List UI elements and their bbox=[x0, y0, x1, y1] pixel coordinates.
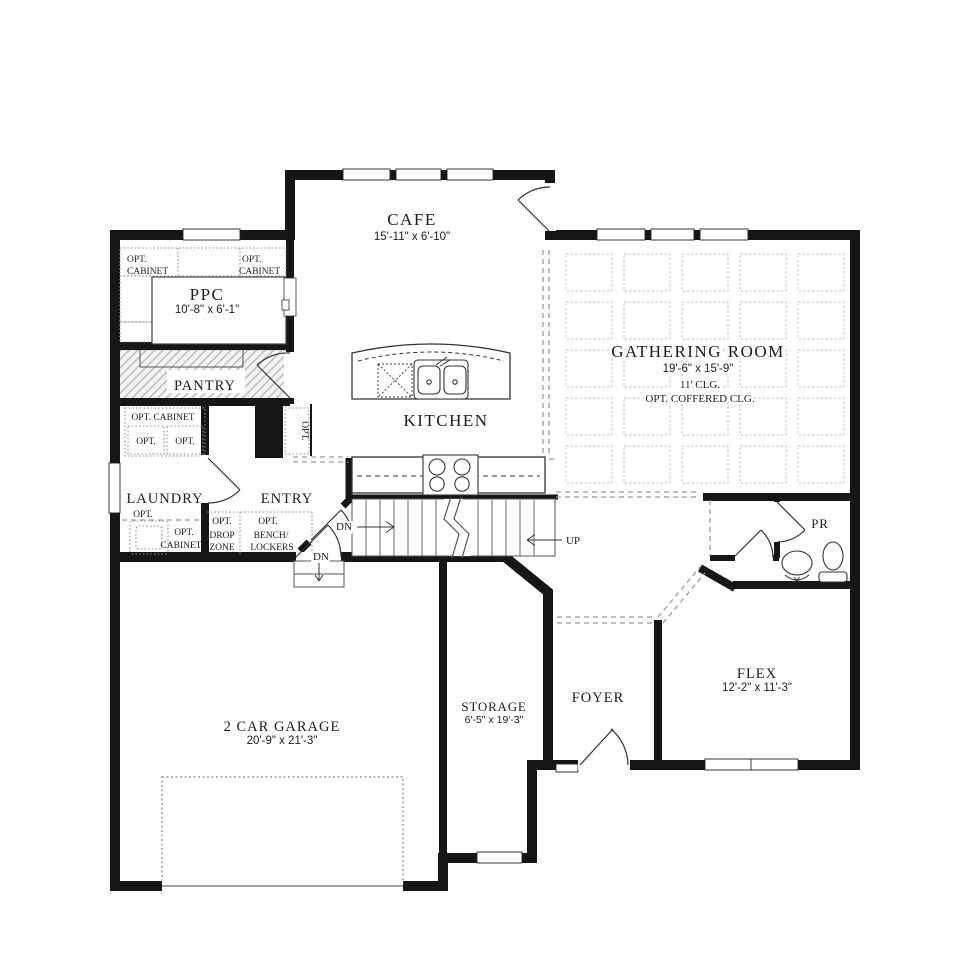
gathering-label: GATHERING ROOM bbox=[611, 342, 785, 361]
opt-cabinet-right-l2: CABINET bbox=[239, 267, 280, 277]
cooktop bbox=[423, 455, 478, 495]
bench-lockers-l3: LOCKERS bbox=[250, 543, 293, 553]
stairs-dn-label: DN bbox=[336, 521, 352, 533]
ppc-opening-handle bbox=[282, 300, 289, 310]
storage-dims: 6'-5" x 19'-3" bbox=[465, 714, 524, 726]
storage-label: STORAGE bbox=[461, 699, 526, 714]
kitchen-label: KITCHEN bbox=[403, 411, 488, 430]
cafe-window bbox=[447, 169, 493, 180]
opt-box-2: OPT. bbox=[175, 437, 195, 447]
cafe-window bbox=[343, 169, 390, 180]
laundry-door bbox=[208, 458, 240, 503]
pr-toilet bbox=[819, 542, 847, 582]
drop-zone-l1: OPT. bbox=[212, 517, 232, 527]
laundry-opt-cab-l1: OPT. bbox=[174, 528, 194, 538]
ppc-dims: 10'-8" x 6'-1" bbox=[175, 304, 239, 316]
opt-cabinet-line: OPT. CABINET bbox=[131, 413, 194, 423]
garage-landing-steps bbox=[294, 561, 344, 587]
powder-room-fixtures bbox=[782, 542, 847, 583]
laundry-opt: OPT. bbox=[133, 510, 153, 520]
garage-step-door bbox=[477, 852, 522, 863]
laundry-opt-cab-l2: CABINET bbox=[160, 541, 201, 551]
floor-plan: CAFE 15'-11" x 6'-10" PPC 10'-8" x 6'-1"… bbox=[0, 0, 960, 960]
porch-step bbox=[556, 764, 578, 772]
drop-zone-l3: ZONE bbox=[209, 543, 235, 553]
flex-dims: 12'-2" x 11'-3" bbox=[722, 682, 792, 694]
kitchen-sink bbox=[414, 357, 468, 399]
closet-opt-vertical: OPT. bbox=[299, 421, 309, 441]
gathering-ceiling: 11' CLG. bbox=[680, 379, 720, 391]
garage-door-outline bbox=[162, 777, 403, 883]
flex-label: FLEX bbox=[737, 666, 777, 682]
laundry-label: LAUNDRY bbox=[126, 491, 203, 507]
gathering-dims: 19'-6" x 15'-9" bbox=[663, 363, 734, 375]
opt-cabinet-left-l2: CABINET bbox=[127, 267, 168, 277]
opt-cabinet-right-l1: OPT. bbox=[242, 255, 262, 265]
front-door bbox=[580, 729, 628, 765]
cafe-dims: 15'-11" x 6'-10" bbox=[374, 231, 450, 243]
gathering-window bbox=[597, 229, 645, 240]
gathering-window bbox=[700, 229, 748, 240]
garage-dims: 20'-9" x 21'-3" bbox=[247, 735, 318, 747]
pantry-label: PANTRY bbox=[174, 378, 236, 394]
entry-label: ENTRY bbox=[261, 491, 314, 507]
bench-lockers-l2: BENCH/ bbox=[254, 531, 289, 541]
pr-sink bbox=[782, 551, 812, 583]
gathering-ceiling-option: OPT. COFFERED CLG. bbox=[645, 393, 754, 405]
pr-label: PR bbox=[811, 516, 829, 531]
foyer-label: FOYER bbox=[572, 690, 625, 706]
landing-dn-label: DN bbox=[313, 551, 329, 563]
stairs bbox=[352, 497, 562, 558]
cafe-label: CAFE bbox=[387, 210, 436, 229]
laundry-window bbox=[109, 463, 120, 513]
hall-closet-door bbox=[733, 530, 773, 558]
gathering-window bbox=[651, 229, 694, 240]
ppc-window bbox=[183, 229, 240, 240]
floor-plan-drawing: CAFE 15'-11" x 6'-10" PPC 10'-8" x 6'-1"… bbox=[0, 0, 960, 960]
cafe-window bbox=[396, 169, 441, 180]
bench-lockers-l1: OPT. bbox=[258, 517, 278, 527]
opt-box-1: OPT. bbox=[136, 437, 156, 447]
pantry-area bbox=[119, 350, 286, 402]
ppc-label: PPC bbox=[190, 285, 225, 304]
flex-window bbox=[705, 759, 798, 770]
stairs-up-label: UP bbox=[566, 535, 580, 547]
garage-label: 2 CAR GARAGE bbox=[224, 719, 341, 735]
opt-cabinet-left-l1: OPT. bbox=[127, 255, 147, 265]
drop-zone-l2: DROP bbox=[209, 531, 234, 541]
